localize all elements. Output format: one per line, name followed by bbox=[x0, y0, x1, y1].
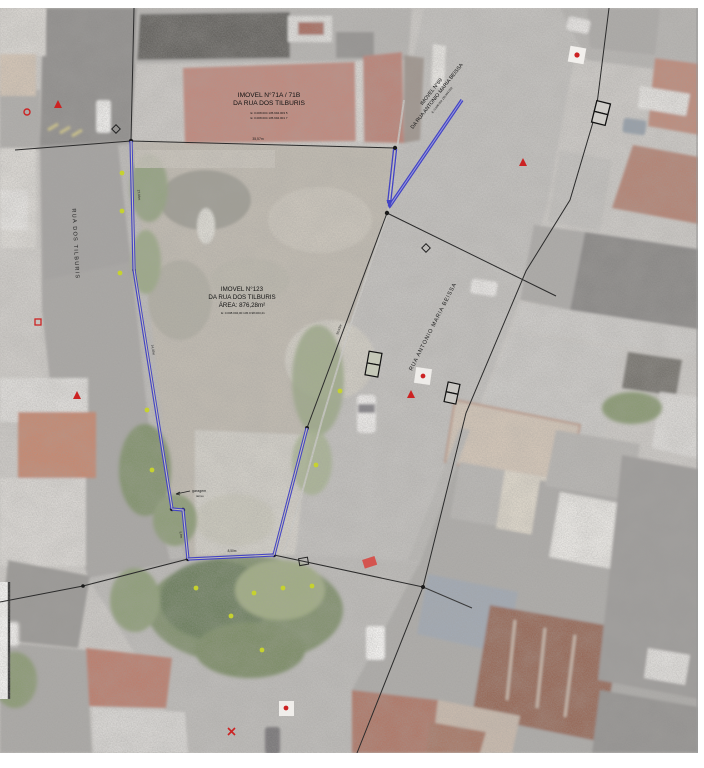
svg-text:DA RUA DOS TILBURIS: DA RUA DOS TILBURIS bbox=[233, 100, 305, 107]
svg-text:DA RUA DOS TILBURIS: DA RUA DOS TILBURIS bbox=[208, 294, 275, 301]
svg-text:8,50m: 8,50m bbox=[228, 549, 237, 553]
svg-text:garagem: garagem bbox=[192, 489, 206, 493]
svg-text:35,57m: 35,57m bbox=[252, 137, 263, 141]
svg-text:térreo: térreo bbox=[196, 494, 204, 498]
svg-text:E: 0.008.004 135.994.003 5: E: 0.008.004 135.994.003 5 bbox=[250, 111, 287, 115]
svg-text:E: 0.008.004,00 145.0.98.003,: E: 0.008.004,00 145.0.98.003,21 bbox=[221, 311, 265, 315]
svg-text:IMOVEL N°71A / 71B: IMOVEL N°71A / 71B bbox=[238, 91, 301, 99]
svg-text:ÁREA: 876,28m²: ÁREA: 876,28m² bbox=[219, 302, 265, 309]
svg-text:IMOVEL N°123: IMOVEL N°123 bbox=[221, 286, 264, 293]
svg-text:E: 0.008.004 135.994.001 7: E: 0.008.004 135.994.001 7 bbox=[250, 116, 287, 120]
